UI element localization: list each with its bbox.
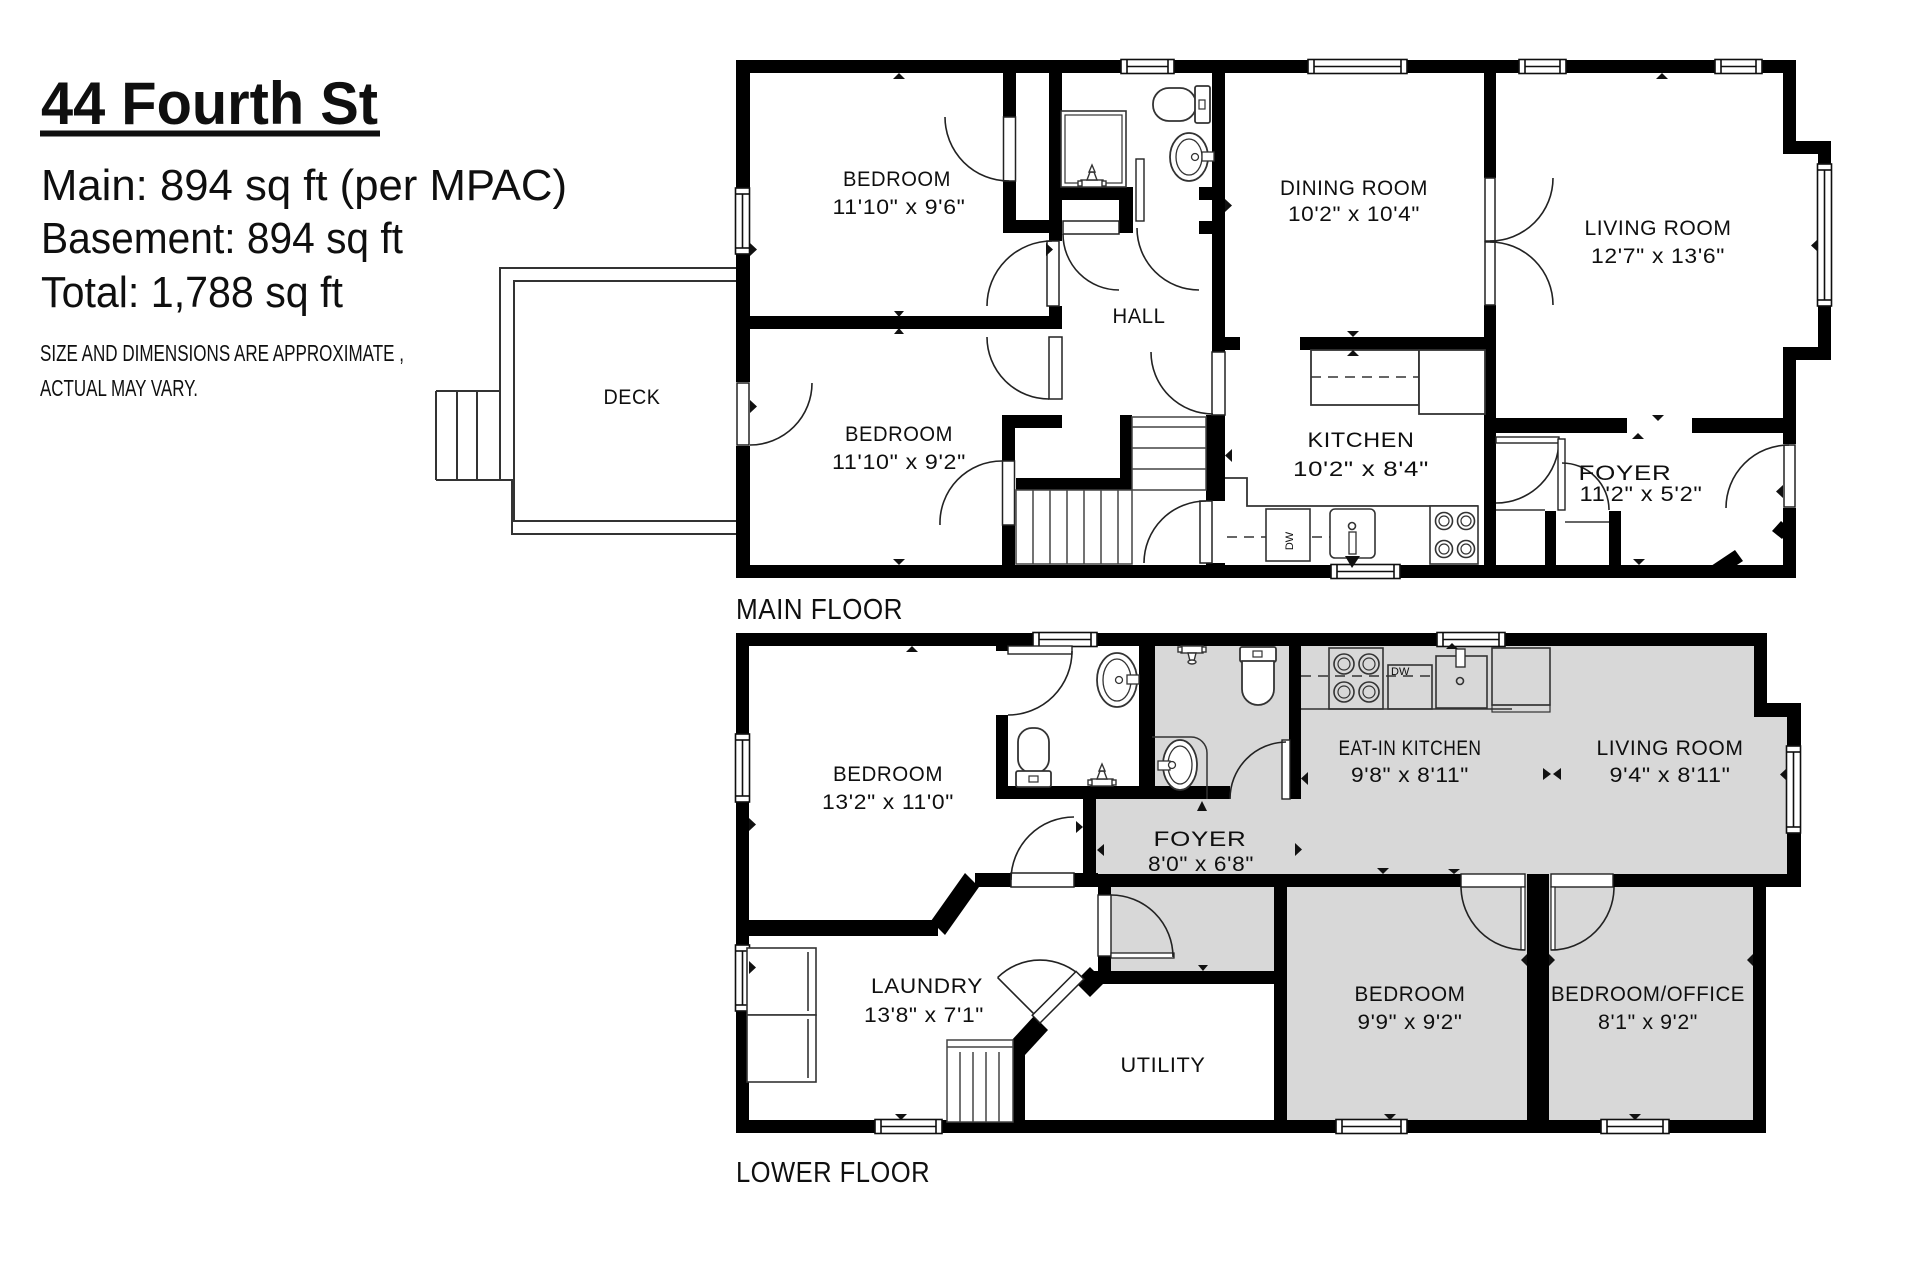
svg-text:LAUNDRY: LAUNDRY xyxy=(871,974,983,998)
svg-text:MAIN FLOOR: MAIN FLOOR xyxy=(736,594,903,626)
svg-text:8'1" x 9'2": 8'1" x 9'2" xyxy=(1598,1010,1698,1034)
svg-text:11'2" x 5'2": 11'2" x 5'2" xyxy=(1580,482,1703,506)
svg-text:LOWER FLOOR: LOWER FLOOR xyxy=(736,1157,930,1189)
svg-text:ACTUAL MAY VARY.: ACTUAL MAY VARY. xyxy=(40,375,198,401)
svg-text:EAT-IN KITCHEN: EAT-IN KITCHEN xyxy=(1339,736,1482,760)
svg-text:Total: 1,788 sq ft: Total: 1,788 sq ft xyxy=(41,268,343,317)
svg-text:DW: DW xyxy=(1284,531,1296,550)
svg-text:9'4" x 8'11": 9'4" x 8'11" xyxy=(1610,763,1731,787)
svg-text:LIVING ROOM: LIVING ROOM xyxy=(1585,216,1732,240)
svg-text:11'10" x 9'6": 11'10" x 9'6" xyxy=(833,195,966,219)
svg-text:9'9" x 9'2": 9'9" x 9'2" xyxy=(1358,1010,1463,1034)
svg-text:SIZE AND DIMENSIONS ARE APPROX: SIZE AND DIMENSIONS ARE APPROXIMATE , xyxy=(40,340,404,366)
svg-text:BEDROOM: BEDROOM xyxy=(1355,982,1466,1006)
svg-text:13'8" x 7'1": 13'8" x 7'1" xyxy=(864,1003,984,1027)
svg-text:FOYER: FOYER xyxy=(1154,827,1247,851)
svg-text:BEDROOM: BEDROOM xyxy=(845,422,953,446)
svg-text:Main: 894 sq ft (per MPAC): Main: 894 sq ft (per MPAC) xyxy=(41,161,567,210)
svg-text:12'7" x 13'6": 12'7" x 13'6" xyxy=(1591,244,1725,268)
svg-text:11'10" x 9'2": 11'10" x 9'2" xyxy=(832,450,966,474)
svg-text:BEDROOM: BEDROOM xyxy=(843,167,951,191)
svg-text:Basement: 894 sq ft: Basement: 894 sq ft xyxy=(41,214,403,263)
svg-text:DINING ROOM: DINING ROOM xyxy=(1280,176,1428,200)
svg-text:13'2" x 11'0": 13'2" x 11'0" xyxy=(822,790,954,814)
svg-text:BEDROOM: BEDROOM xyxy=(833,762,943,786)
svg-text:9'8" x 8'11": 9'8" x 8'11" xyxy=(1351,763,1469,787)
svg-text:DW: DW xyxy=(1391,666,1410,678)
svg-text:UTILITY: UTILITY xyxy=(1121,1053,1206,1077)
svg-text:10'2" x 10'4": 10'2" x 10'4" xyxy=(1288,202,1420,226)
svg-text:DECK: DECK xyxy=(604,385,661,409)
svg-text:10'2" x 8'4": 10'2" x 8'4" xyxy=(1293,457,1429,481)
svg-text:LIVING ROOM: LIVING ROOM xyxy=(1597,736,1744,760)
svg-text:KITCHEN: KITCHEN xyxy=(1308,428,1415,452)
svg-text:HALL: HALL xyxy=(1113,304,1166,328)
svg-text:BEDROOM/OFFICE: BEDROOM/OFFICE xyxy=(1551,982,1745,1006)
svg-text:44 Fourth St: 44 Fourth St xyxy=(41,70,378,137)
svg-text:8'0" x 6'8": 8'0" x 6'8" xyxy=(1148,852,1254,876)
